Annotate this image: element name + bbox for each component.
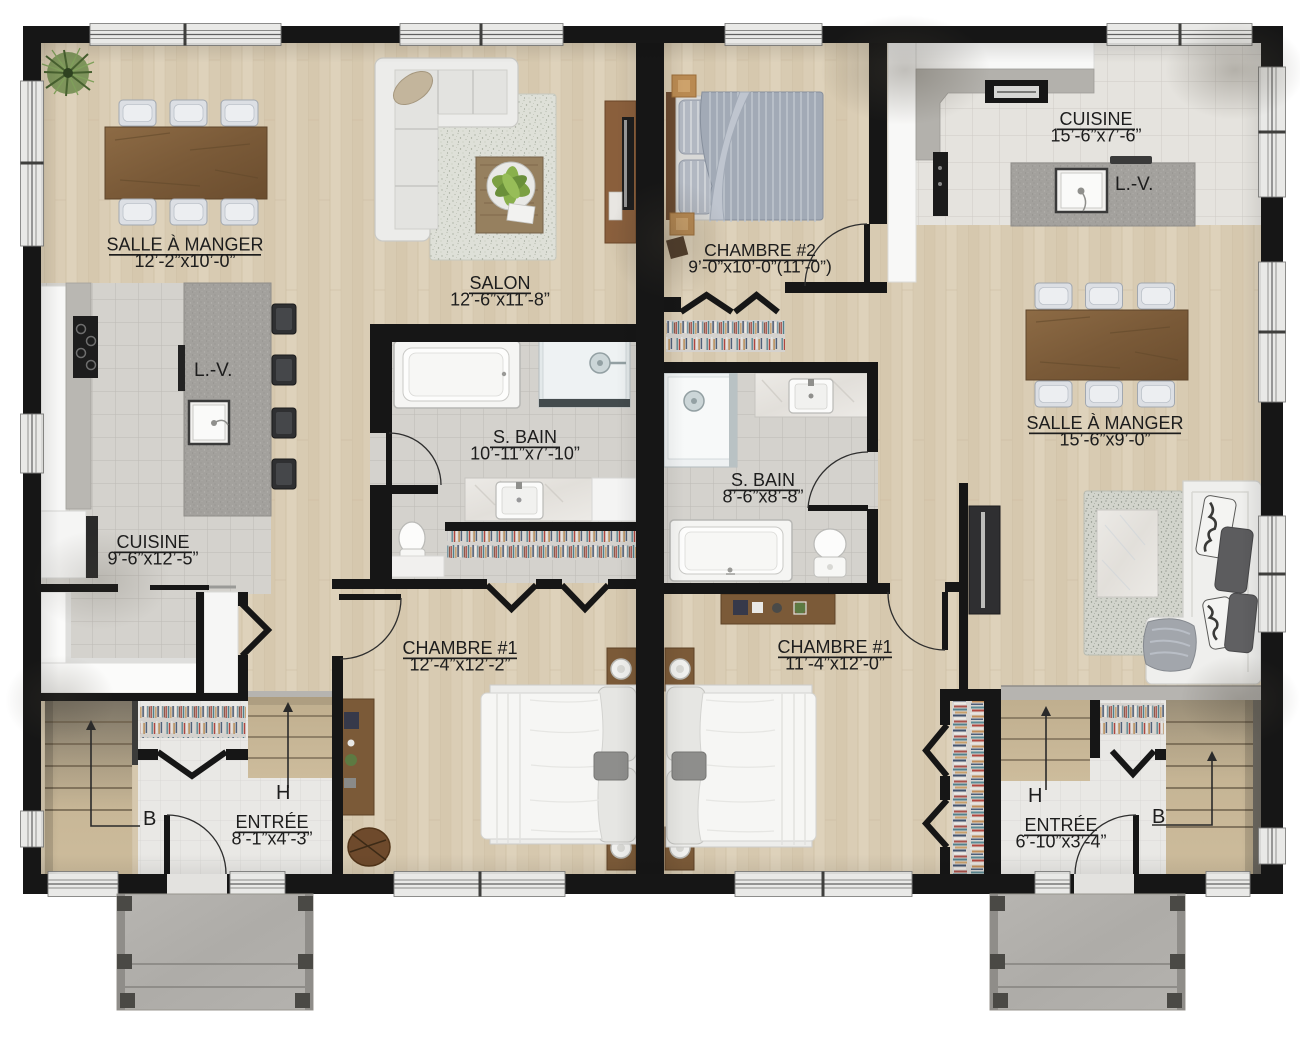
svg-text:8’-6”x8’-8”: 8’-6”x8’-8” [722,487,803,507]
svg-text:6’-10”x3’-4”: 6’-10”x3’-4” [1015,832,1106,852]
svg-text:12’-6”x11’-8”: 12’-6”x11’-8” [450,290,550,310]
svg-text:9’-0”x10’-0”(11’-0”): 9’-0”x10’-0”(11’-0”) [688,257,832,277]
svg-text:15’-6”x7’-6”: 15’-6”x7’-6” [1050,126,1141,146]
svg-text:12’-2”x10’-0”: 12’-2”x10’-0” [134,251,235,271]
svg-text:L.-V.: L.-V. [1115,174,1153,195]
svg-text:11’-4”x12’-0”: 11’-4”x12’-0” [785,654,885,674]
svg-text:8’-1”x4’-3”: 8’-1”x4’-3” [231,829,312,849]
svg-text:15’-6”x9’-0”: 15’-6”x9’-0” [1059,430,1150,450]
svg-text:10’-11”x7’-10”: 10’-11”x7’-10” [470,444,580,464]
svg-text:H: H [1028,785,1042,807]
svg-text:12’-4”x12’-2”: 12’-4”x12’-2” [409,655,510,675]
svg-text:9’-6”x12’-5”: 9’-6”x12’-5” [107,549,198,569]
svg-text:L.-V.: L.-V. [194,360,232,381]
svg-text:B: B [143,808,156,830]
svg-text:H: H [276,782,290,804]
svg-text:B: B [1152,806,1165,828]
